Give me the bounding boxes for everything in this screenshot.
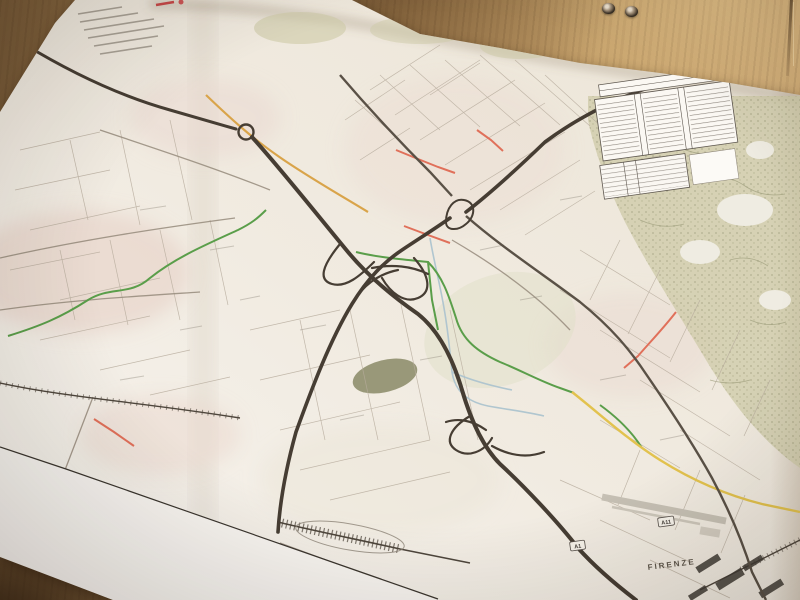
legend-table bbox=[589, 67, 744, 199]
road-shield-a1: A1 bbox=[570, 540, 586, 551]
printed-road-map: A1 A11 FIRENZE bbox=[0, 0, 800, 600]
photo-of-map-on-table: A1 A11 FIRENZE bbox=[0, 0, 800, 600]
road-shield-a11: A11 bbox=[658, 516, 675, 527]
map-sheet: A1 A11 FIRENZE bbox=[0, 0, 800, 600]
svg-text:A1: A1 bbox=[574, 544, 582, 551]
legend-blank-box bbox=[689, 149, 739, 185]
